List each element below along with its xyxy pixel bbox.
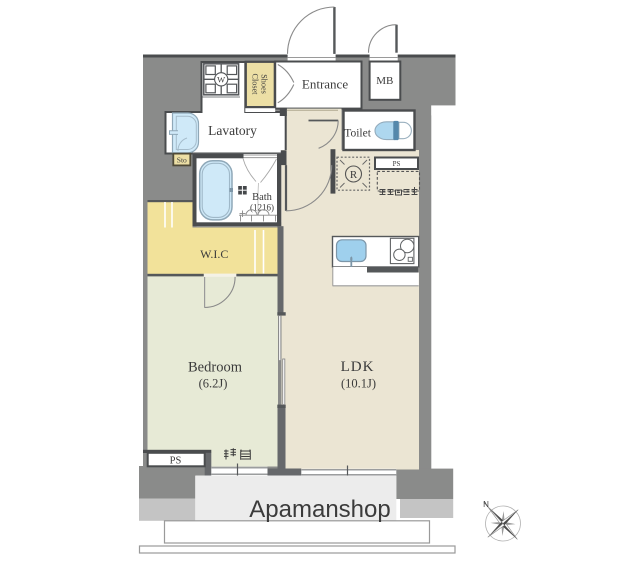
svg-text:Bedroom: Bedroom [188, 360, 243, 376]
svg-text:Bath: Bath [252, 192, 273, 203]
svg-text:W: W [217, 74, 225, 84]
svg-text:PS: PS [170, 456, 182, 467]
svg-text:N: N [483, 500, 489, 509]
svg-text:PS: PS [393, 160, 401, 168]
svg-text:Sto: Sto [177, 156, 187, 165]
svg-text:Shoes: Shoes [260, 74, 269, 94]
svg-text:LDK: LDK [341, 359, 375, 375]
svg-text:W.I.C: W.I.C [200, 247, 228, 261]
svg-text:(6.2J): (6.2J) [199, 377, 228, 391]
svg-text:(1216): (1216) [250, 203, 274, 213]
svg-text:Toilet: Toilet [344, 128, 371, 140]
svg-text:Lavatory: Lavatory [208, 123, 257, 138]
svg-text:R: R [350, 169, 358, 181]
svg-text:(10.1J): (10.1J) [341, 377, 376, 391]
svg-text:Apamanshop: Apamanshop [249, 496, 390, 523]
svg-text:Closet: Closet [250, 74, 259, 96]
svg-text:Entrance: Entrance [302, 77, 348, 92]
svg-text:MB: MB [376, 75, 393, 87]
